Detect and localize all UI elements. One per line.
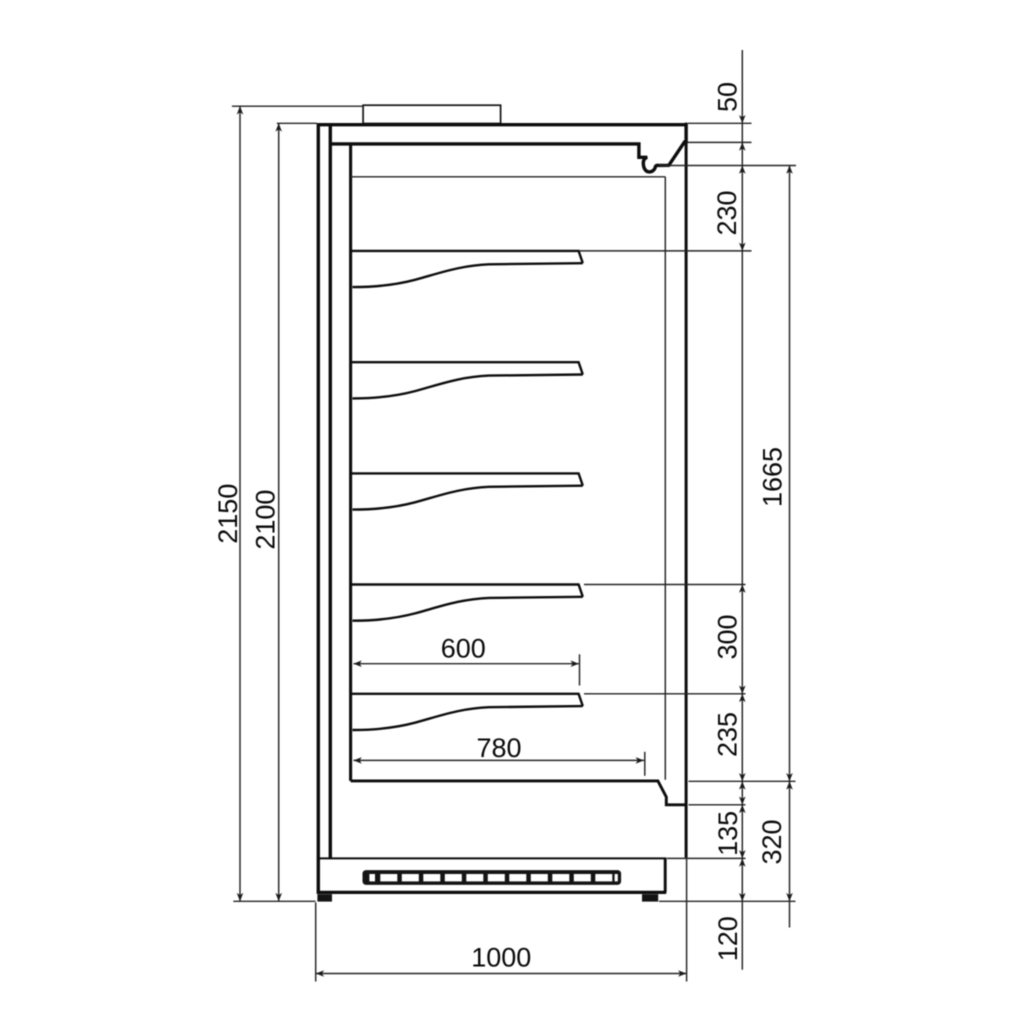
svg-text:2150: 2150 <box>213 484 243 544</box>
svg-text:235: 235 <box>713 712 743 757</box>
svg-text:1000: 1000 <box>471 942 531 972</box>
svg-text:2100: 2100 <box>250 490 280 550</box>
svg-text:230: 230 <box>712 190 742 235</box>
svg-text:1665: 1665 <box>758 447 788 507</box>
svg-text:320: 320 <box>757 819 787 864</box>
svg-text:50: 50 <box>713 82 743 112</box>
svg-text:780: 780 <box>476 733 521 763</box>
svg-text:135: 135 <box>713 811 743 856</box>
svg-text:120: 120 <box>713 916 743 961</box>
svg-text:300: 300 <box>713 614 743 659</box>
svg-text:600: 600 <box>441 634 486 664</box>
